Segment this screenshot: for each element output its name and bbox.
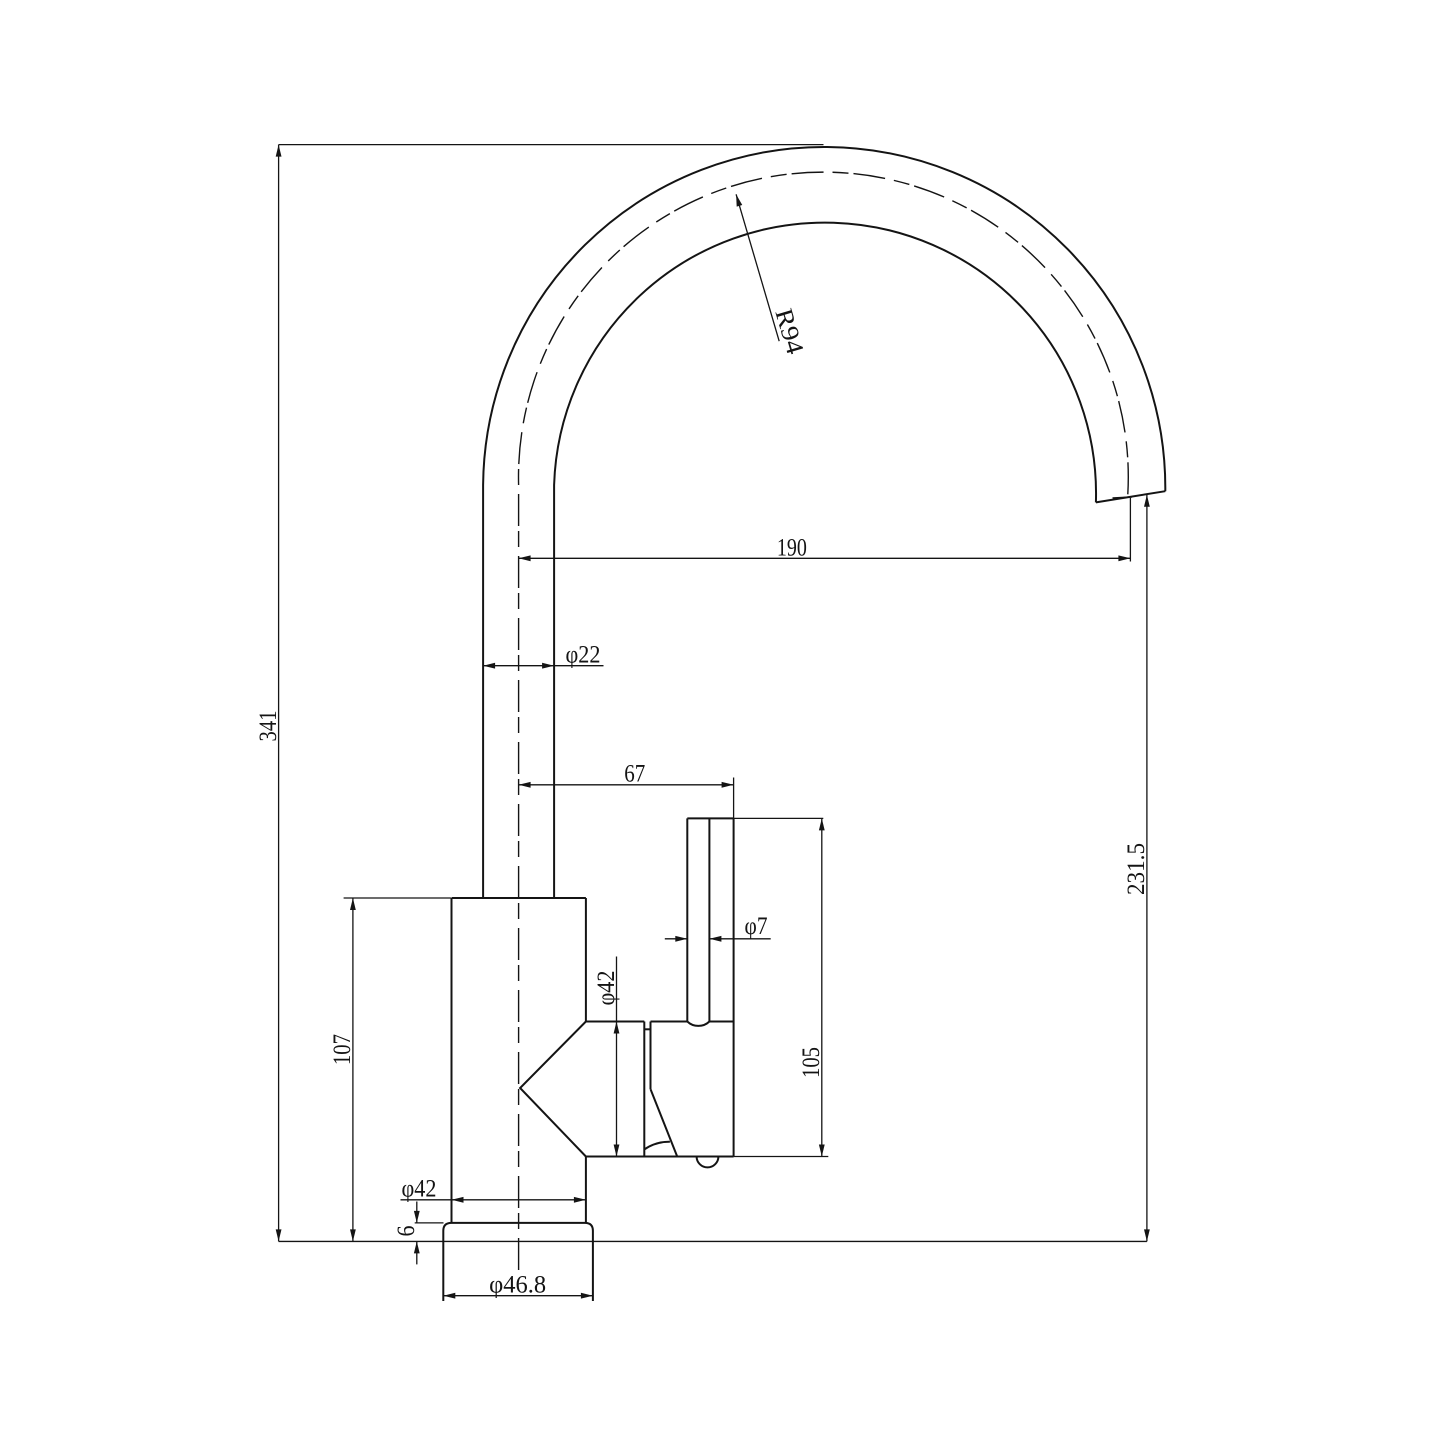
svg-text:φ7: φ7 — [745, 913, 768, 940]
svg-text:105: 105 — [798, 1047, 825, 1078]
svg-text:φ42: φ42 — [402, 1176, 437, 1203]
svg-text:R94: R94 — [769, 306, 808, 358]
svg-text:231.5: 231.5 — [1123, 843, 1150, 895]
svg-text:6: 6 — [393, 1226, 420, 1237]
svg-text:φ22: φ22 — [566, 642, 601, 669]
svg-text:190: 190 — [777, 535, 807, 562]
svg-text:φ46.8: φ46.8 — [489, 1272, 546, 1299]
svg-text:107: 107 — [329, 1034, 356, 1065]
svg-text:341: 341 — [255, 711, 282, 742]
svg-text:67: 67 — [624, 761, 645, 788]
svg-text:φ42: φ42 — [593, 971, 620, 1006]
